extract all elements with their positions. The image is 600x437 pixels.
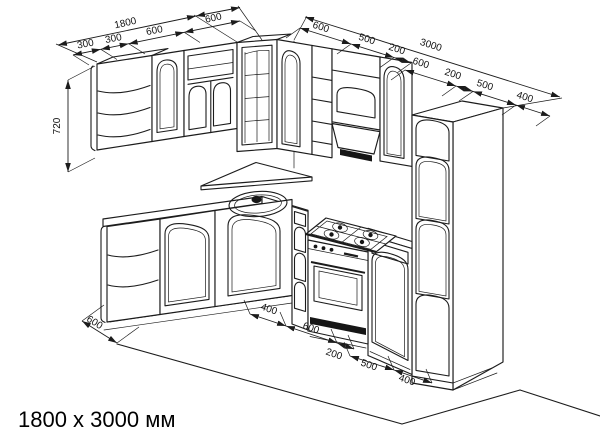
dim-label: 200 — [324, 347, 344, 363]
dim-label: 300 — [76, 37, 95, 51]
dim-label: 720 — [52, 117, 63, 134]
tall-pantry-cabinet — [412, 101, 503, 390]
base-corner-shelf-unit — [107, 219, 160, 322]
dim-label: 200 — [387, 42, 407, 58]
oven-knob — [322, 246, 326, 250]
dim-label: 600 — [311, 20, 331, 36]
upper-cabinets-right — [277, 40, 412, 167]
kitchen-drawing-svg: 1800 600 300 300 600 720 3000 600 500 20… — [0, 0, 600, 437]
oven-knob — [314, 245, 318, 249]
dim-label: 600 — [204, 11, 223, 25]
oven-knob — [330, 248, 334, 252]
dim-label: 400 — [259, 302, 279, 318]
dimension-height: 720 — [52, 66, 95, 172]
dim-label: 500 — [357, 32, 377, 48]
dim-label: 3000 — [418, 37, 443, 54]
drawing-title: 1800 x 3000 мм — [18, 407, 175, 432]
faucet-base — [252, 196, 262, 203]
kitchen-blueprint: 1800 600 300 300 600 720 3000 600 500 20… — [0, 0, 600, 437]
dim-label: 300 — [104, 32, 123, 46]
dim-label: 600 — [84, 314, 104, 332]
dim-label: 600 — [411, 56, 431, 72]
dim-label: 500 — [475, 78, 495, 94]
dim-label: 500 — [359, 358, 379, 374]
upper-cabinets-left — [91, 34, 291, 152]
dim-label: 600 — [145, 24, 164, 38]
dim-label: 200 — [443, 67, 463, 83]
